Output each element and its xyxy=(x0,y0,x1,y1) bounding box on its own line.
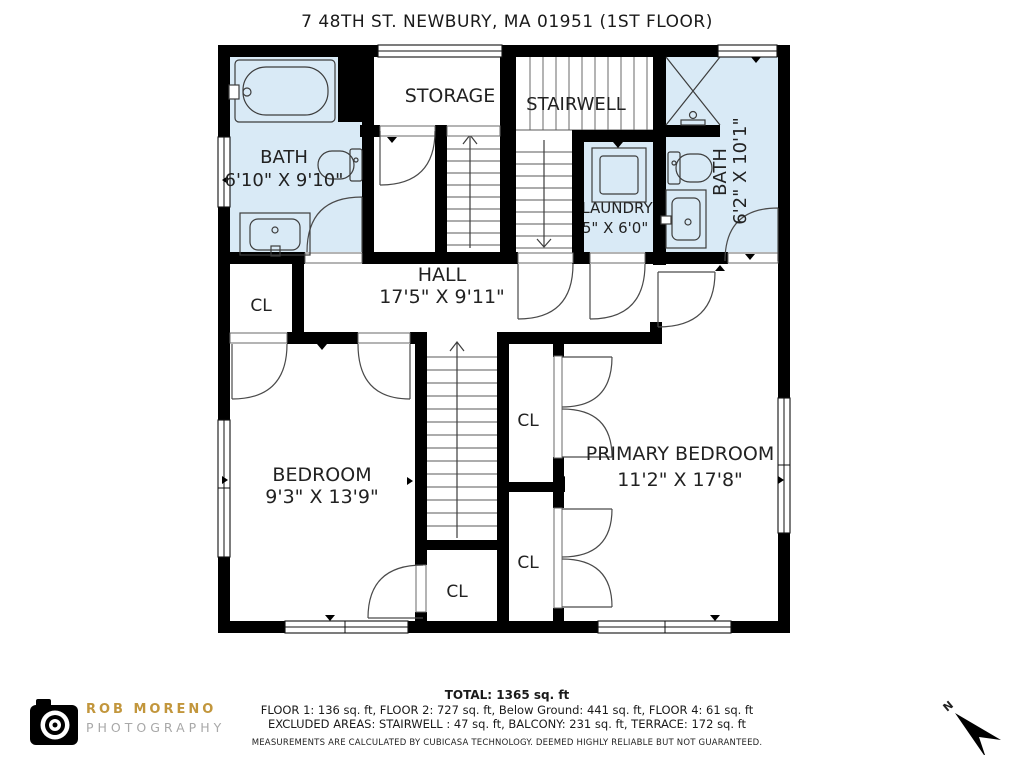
logo-subtitle: PHOTOGRAPHY xyxy=(86,720,225,735)
closet-hall-label: CL xyxy=(250,296,272,316)
window-top-storage xyxy=(378,45,502,57)
hall-name: HALL xyxy=(418,264,467,286)
north-label: N xyxy=(941,698,956,714)
closet-bedroom-label: CL xyxy=(446,582,468,602)
stairwell-lower-flight xyxy=(516,140,572,248)
primary-entry-door xyxy=(658,272,715,327)
stairwell-door xyxy=(518,264,573,319)
stairwell-label: STAIRWELL xyxy=(526,94,626,115)
primary-bedroom-name: PRIMARY BEDROOM xyxy=(586,443,774,465)
window-bottom-primary xyxy=(598,621,731,633)
bath-left-dims: 6'10" X 9'10" xyxy=(225,170,344,191)
laundry-dims: '5" X 6'0" xyxy=(578,219,649,237)
bedroom-entry-door xyxy=(358,344,410,399)
bath-right-name: BATH xyxy=(710,148,731,196)
closet-upper-label: CL xyxy=(517,411,539,431)
north-arrow-icon: N xyxy=(925,695,1010,755)
storage-label: STORAGE xyxy=(405,85,495,107)
bath-left-name: BATH xyxy=(260,147,308,168)
photographer-logo: ROB MORENO PHOTOGRAPHY xyxy=(30,694,260,750)
camera-icon xyxy=(30,698,80,746)
bedroom-name: BEDROOM xyxy=(272,464,371,486)
window-right-primary xyxy=(778,398,790,533)
floor-plan-drawing: LAUNDRY '5" X 6'0" xyxy=(0,0,1014,758)
window-bottom-bedroom xyxy=(285,621,408,633)
floor-plan-page: 7 48TH ST. NEWBURY, MA 01951 (1ST FLOOR)… xyxy=(0,0,1014,758)
stairs-center xyxy=(427,342,497,538)
primary-bedroom-dims: 11'2" X 17'8" xyxy=(617,469,743,491)
bedroom-cl-door xyxy=(368,565,423,618)
hall-dims: 17'5" X 9'11" xyxy=(379,286,505,308)
logo-name: ROB MORENO xyxy=(86,702,216,717)
closet-upper-double-doors xyxy=(562,357,612,457)
bath-right-dims: 6'2" X 10'1" xyxy=(730,117,751,225)
closet-lower-label: CL xyxy=(517,553,539,573)
laundry-door xyxy=(590,264,645,319)
bedroom-dims: 9'3" X 13'9" xyxy=(265,486,378,508)
window-top-bath-right xyxy=(718,45,777,57)
window-left-bedroom xyxy=(218,420,230,557)
storage-door xyxy=(380,131,435,185)
page-title: 7 48TH ST. NEWBURY, MA 01951 (1ST FLOOR) xyxy=(0,12,1014,32)
closet-lower-double-doors xyxy=(562,509,612,607)
stairs-under-storage xyxy=(447,135,500,248)
bedroom-closet-door xyxy=(232,344,287,399)
